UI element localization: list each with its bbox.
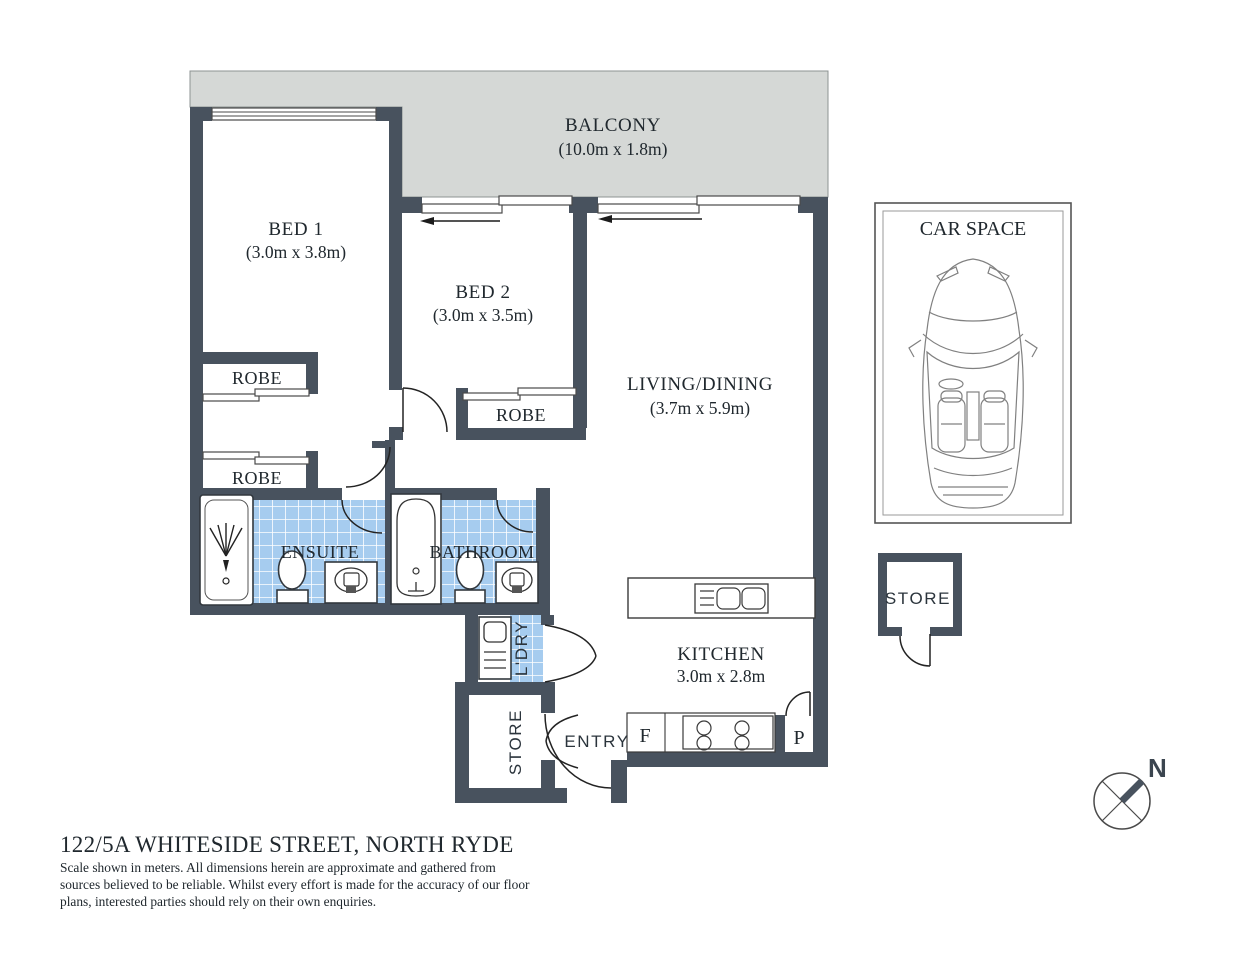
robe-label: ROBE (496, 405, 546, 425)
shower-icon (200, 495, 253, 605)
kitchen-island (628, 578, 815, 618)
bed1-dims: (3.0m x 3.8m) (246, 242, 346, 262)
balcony-dims: (10.0m x 1.8m) (559, 139, 668, 159)
kitchen-label: KITCHEN (677, 644, 765, 665)
disclaimer-line: Scale shown in meters. All dimensions he… (60, 860, 496, 875)
north-arrow-icon (1122, 781, 1142, 801)
page-title: 122/5A WHITESIDE STREET, NORTH RYDE (60, 832, 514, 857)
bed2-label: BED 2 (455, 282, 510, 303)
sliding-door-living-icon (598, 196, 800, 223)
compass-icon: N (1094, 753, 1167, 829)
disclaimer-line: plans, interested parties should rely on… (60, 894, 376, 909)
bathroom-label: BATHROOM (429, 542, 534, 562)
kitchen-dims: 3.0m x 2.8m (677, 666, 766, 686)
robe-label: ROBE (232, 468, 282, 488)
floor-plan-page: BALCONY (10.0m x 1.8m) BED 1 (3.0m x 3.8… (0, 0, 1242, 960)
sliding-door-bed2-icon (420, 196, 572, 225)
ensuite-label: ENSUITE (281, 542, 360, 562)
laundry-label: L'DRY (512, 620, 531, 676)
living-label: LIVING/DINING (627, 374, 773, 395)
external-store-box: STORE (878, 553, 962, 666)
car-space-box: CAR SPACE (875, 203, 1071, 523)
floor-plan: BALCONY (10.0m x 1.8m) BED 1 (3.0m x 3.8… (0, 0, 1242, 960)
bed1-label: BED 1 (268, 219, 323, 240)
external-store-label: STORE (885, 589, 951, 608)
living-dims: (3.7m x 5.9m) (650, 398, 750, 418)
disclaimer-line: sources believed to be reliable. Whilst … (60, 877, 530, 892)
pantry-label: P (793, 727, 804, 749)
window-icon (212, 108, 376, 120)
footer: 122/5A WHITESIDE STREET, NORTH RYDE Scal… (60, 832, 530, 909)
balcony-area (190, 71, 828, 197)
balcony-label: BALCONY (565, 115, 661, 136)
walls (190, 107, 828, 803)
washing-machine-icon (479, 617, 511, 679)
bed2-dims: (3.0m x 3.5m) (433, 305, 533, 325)
cooktop-icon (683, 716, 773, 750)
store-label: STORE (506, 709, 525, 775)
car-space-label: CAR SPACE (920, 218, 1027, 240)
entry-label: ENTRY (564, 732, 629, 751)
vanity-icon (325, 562, 377, 603)
north-label: N (1148, 753, 1167, 783)
fridge-label: F (639, 725, 650, 747)
sink-icon (695, 584, 768, 613)
vanity-icon (496, 562, 538, 603)
robe-label: ROBE (232, 368, 282, 388)
